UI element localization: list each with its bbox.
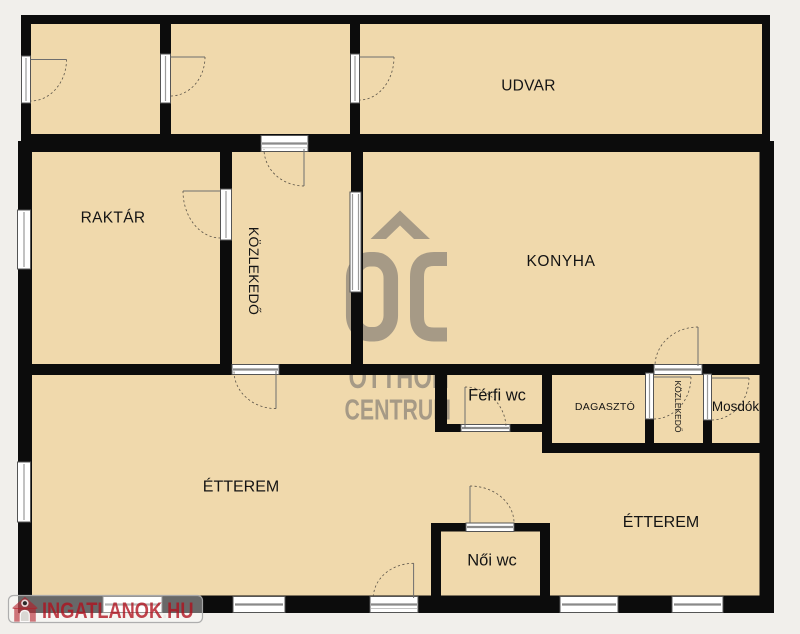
svg-text:UDVAR: UDVAR (501, 78, 556, 95)
svg-text:Mosdók: Mosdók (712, 399, 760, 414)
svg-text:RAKTÁR: RAKTÁR (81, 210, 146, 227)
svg-text:OTTHON: OTTHON (349, 359, 450, 395)
svg-text:KÖZLEKEDŐ: KÖZLEKEDŐ (673, 381, 683, 433)
svg-text:KÖZLEKEDŐ: KÖZLEKEDŐ (246, 227, 263, 315)
svg-text:DAGASZTÓ: DAGASZTÓ (575, 400, 635, 413)
svg-text:Női wc: Női wc (467, 552, 517, 570)
svg-text:INGATLANOK.HU: INGATLANOK.HU (42, 598, 194, 623)
svg-text:ÉTTEREM: ÉTTEREM (623, 512, 699, 531)
svg-text:ÉTTEREM: ÉTTEREM (203, 477, 279, 496)
svg-text:Férfi wc: Férfi wc (468, 387, 526, 405)
svg-text:KONYHA: KONYHA (526, 253, 595, 270)
